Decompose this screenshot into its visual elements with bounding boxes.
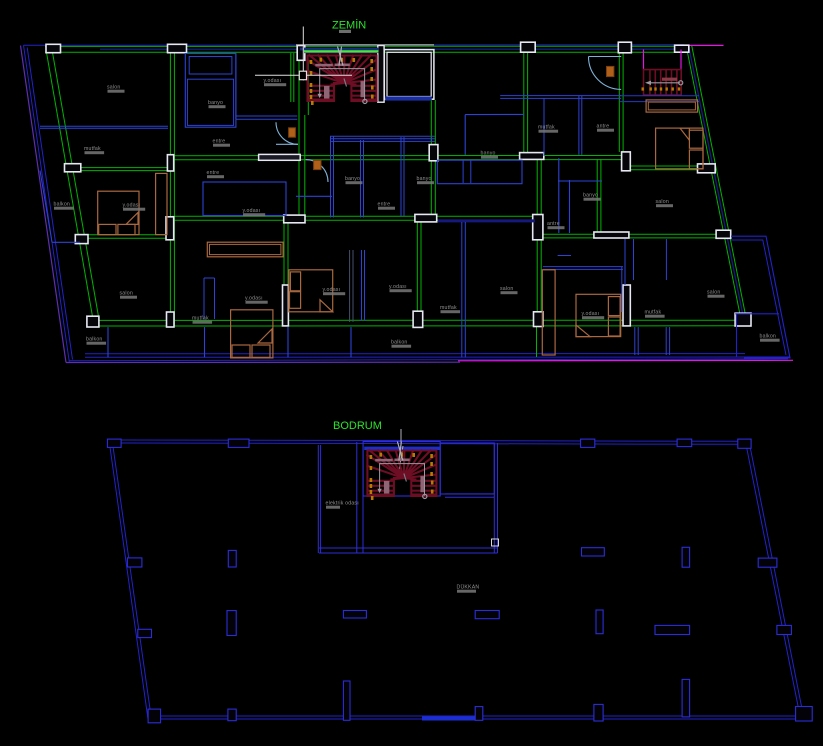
- svg-text:balkon: balkon: [54, 202, 71, 208]
- svg-text:salon: salon: [107, 85, 120, 91]
- svg-text:banyo: banyo: [345, 176, 360, 182]
- svg-text:entre: entre: [213, 139, 226, 145]
- svg-text:antre: antre: [547, 221, 560, 227]
- svg-text:entre: entre: [378, 202, 391, 208]
- svg-text:salon: salon: [656, 199, 669, 205]
- svg-text:antre: antre: [597, 124, 610, 130]
- svg-text:DÜKKAN: DÜKKAN: [457, 584, 480, 591]
- svg-text:mutfak: mutfak: [192, 316, 209, 322]
- svg-text:mutfak: mutfak: [645, 310, 662, 316]
- svg-text:y.odası: y.odası: [245, 296, 263, 302]
- svg-text:y.odası: y.odası: [243, 208, 261, 214]
- svg-text:banyo: banyo: [583, 193, 598, 199]
- svg-text:mutfak: mutfak: [440, 305, 457, 311]
- svg-text:y.odası: y.odası: [123, 203, 141, 209]
- svg-text:y.odası: y.odası: [389, 284, 407, 290]
- svg-text:balkon: balkon: [86, 337, 103, 343]
- svg-text:banyo: banyo: [481, 151, 496, 157]
- svg-text:ZEMİN: ZEMİN: [332, 19, 366, 32]
- svg-text:y.odası: y.odası: [582, 311, 600, 317]
- svg-text:salon: salon: [500, 286, 513, 292]
- svg-text:entre: entre: [207, 170, 220, 176]
- svg-text:salon: salon: [707, 290, 720, 296]
- svg-text:salon: salon: [120, 291, 133, 297]
- svg-text:y.odası: y.odası: [323, 287, 341, 293]
- svg-text:elektrik odası: elektrik odası: [326, 501, 359, 507]
- svg-text:balkon: balkon: [391, 340, 408, 346]
- svg-text:BODRUM: BODRUM: [333, 420, 382, 432]
- svg-text:mutfak: mutfak: [538, 125, 555, 131]
- svg-text:y.odası: y.odası: [264, 78, 282, 84]
- svg-text:mutfak: mutfak: [84, 146, 101, 152]
- svg-text:banyo: banyo: [417, 176, 432, 182]
- svg-text:banyo: banyo: [208, 100, 223, 106]
- svg-text:balkon: balkon: [760, 334, 777, 340]
